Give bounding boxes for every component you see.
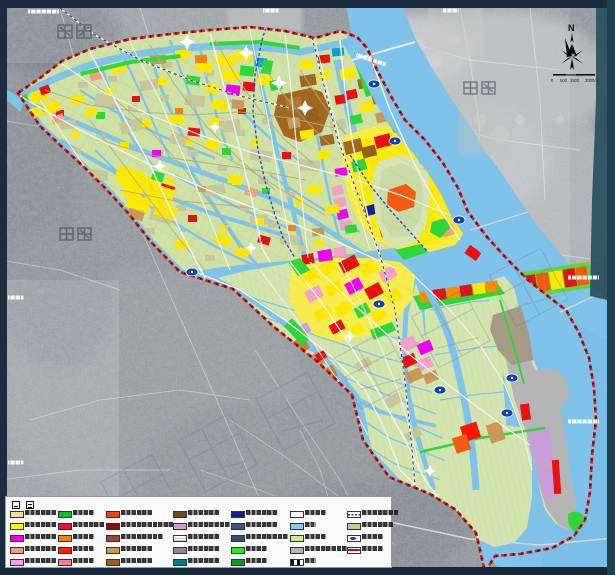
svg-text:1500: 1500 bbox=[570, 78, 580, 83]
svg-text:3000m: 3000m bbox=[585, 78, 598, 83]
svg-text:500: 500 bbox=[560, 78, 568, 83]
svg-text:N: N bbox=[568, 23, 575, 33]
